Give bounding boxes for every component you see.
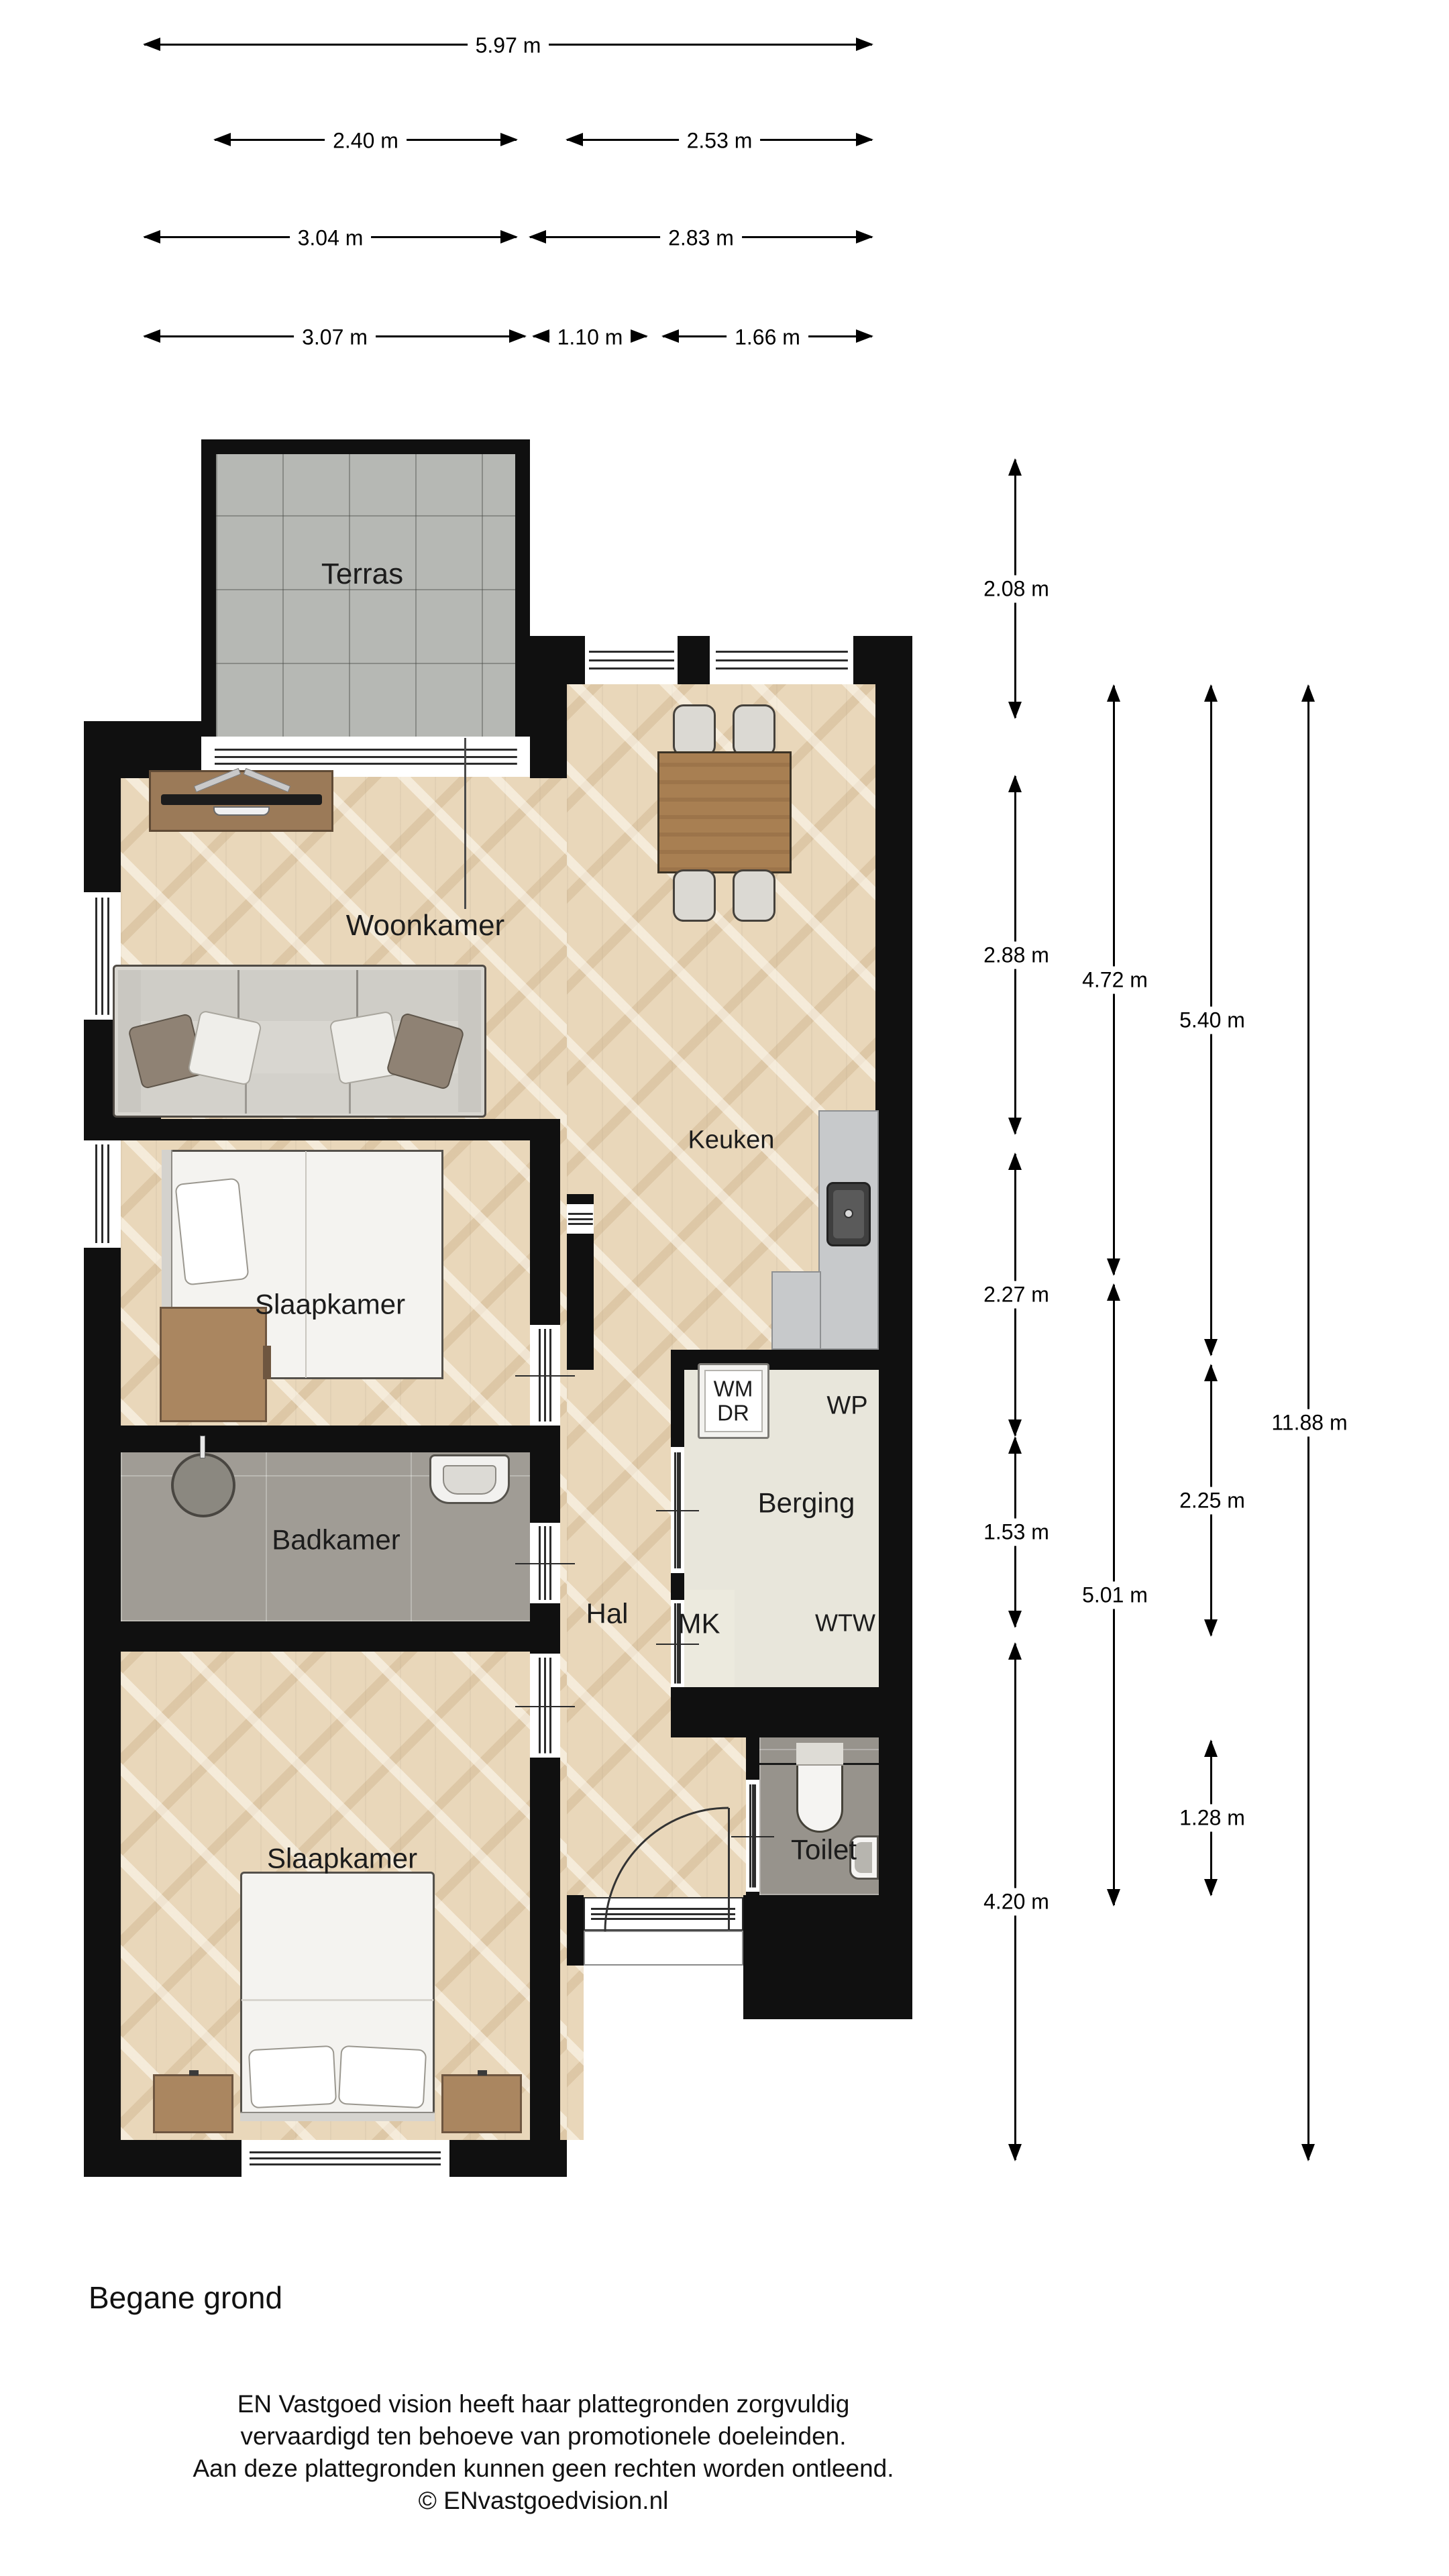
dim-living-depth-label: 4.72 m (1074, 967, 1156, 994)
dim-woonkamer-depth: 2.88 m (1014, 776, 1016, 1134)
dim-living-depth: 4.72 m (1113, 686, 1115, 1275)
dim-badkamer-depth-label: 1.53 m (975, 1519, 1057, 1546)
toilet-seat-top (796, 1743, 843, 1766)
dim-hall-depth: 5.01 m (1113, 1285, 1115, 1905)
sofa-back (118, 970, 481, 1021)
window-slaapkamer2-bottom (241, 2140, 449, 2177)
nightstand-right (441, 2074, 522, 2133)
wall-slaapkamer-badkamer (121, 1426, 530, 1452)
floor-terras (216, 454, 515, 738)
terras-wall-left (201, 439, 216, 738)
door-slaapkamer-1 (530, 1325, 560, 1426)
terras-wall-right (515, 439, 530, 738)
dim-hall-depth-label: 5.01 m (1074, 1581, 1156, 1609)
wall-right (875, 636, 912, 2019)
disclaimer-line-1: EN Vastgoed vision heeft haar plattegron… (134, 2388, 953, 2420)
exterior-below-door (584, 1966, 743, 2140)
wall-hal-vertical (530, 1119, 560, 2140)
kitchen-faucet-icon (844, 1209, 853, 1218)
dining-chair-4 (733, 869, 775, 922)
door-badkamer (530, 1523, 560, 1603)
dim-woonkamer-width-label: 3.04 m (290, 225, 372, 252)
bathroom-sink-basin (443, 1465, 496, 1495)
bed-double-pillow-right (338, 2045, 427, 2109)
label-woonkamer: Woonkamer (346, 910, 504, 942)
bedroom1-desk-notch (263, 1346, 271, 1379)
bedroom1-desk (160, 1307, 267, 1422)
dim-right-width: 2.83 m (530, 236, 872, 238)
front-door-swing-arc (605, 1808, 730, 1933)
disclaimer-line-2: vervaardigd ten behoeve van promotionele… (134, 2420, 953, 2453)
dim-keuken-width-label: 2.53 m (679, 127, 761, 155)
dim-keuken-depth-label: 5.40 m (1171, 1007, 1253, 1034)
shower-faucet (200, 1436, 205, 1458)
label-slaapkamer-2: Slaapkamer (267, 1843, 417, 1873)
exterior-bottom-right (743, 2019, 912, 2140)
dim-total-depth-label: 11.88 m (1263, 1409, 1355, 1437)
door-berging (671, 1447, 684, 1573)
label-badkamer: Badkamer (272, 1524, 400, 1554)
dim-woonkamer-depth-label: 2.88 m (975, 941, 1057, 969)
window-top-1 (585, 636, 678, 684)
door-toilet (746, 1780, 759, 1892)
dim-terras-width-label: 2.40 m (325, 127, 407, 155)
label-mk: MK (678, 1608, 720, 1638)
nightstand-right-knob (478, 2070, 487, 2076)
opening-keuken-hal (567, 1204, 594, 1234)
dining-chair-3 (673, 869, 716, 922)
dining-chair-1 (673, 704, 716, 757)
front-door-step (584, 1931, 743, 1966)
dim-width-total: 5.97 m (144, 44, 872, 46)
wall-woonkamer-slaapkamer (121, 1119, 530, 1140)
wall-frontdoor-left (567, 1895, 584, 1966)
terras-door-leaf-line (464, 738, 466, 909)
dim-width-total-label: 5.97 m (468, 32, 549, 60)
disclaimer-copyright: © ENvastgoedvision.nl (134, 2485, 953, 2517)
window-slaapkamer-left (84, 1140, 121, 1248)
dining-chair-2 (733, 704, 775, 757)
dim-slaapkamer-width-label: 3.07 m (294, 324, 376, 352)
label-keuken: Keuken (688, 1126, 775, 1154)
label-slaapkamer-1: Slaapkamer (255, 1289, 405, 1319)
dim-hal-width-label: 1.10 m (549, 324, 631, 352)
dim-total-depth: 11.88 m (1307, 686, 1309, 2160)
label-toilet: Toilet (791, 1834, 857, 1864)
dim-berging-width: 1.66 m (663, 335, 872, 337)
terras-wall-top (201, 439, 530, 454)
dim-berging-depth-label: 2.25 m (1171, 1487, 1253, 1514)
dim-toilet-depth-label: 1.28 m (1171, 1805, 1253, 1832)
label-hal: Hal (586, 1598, 628, 1628)
wall-bottom-right-chunk (743, 1895, 912, 2019)
label-wm-dr: WM DR (714, 1377, 753, 1424)
dining-table (657, 751, 792, 873)
dim-slaapkamer1-depth: 2.27 m (1014, 1154, 1016, 1436)
label-terras: Terras (321, 558, 403, 590)
bed-single-pillow (174, 1177, 249, 1285)
floor-title: Begane grond (89, 2279, 282, 2316)
dim-woonkamer-width: 3.04 m (144, 236, 517, 238)
shower-drain (171, 1453, 235, 1517)
label-wp: WP (826, 1392, 867, 1419)
dim-terras-depth: 2.08 m (1014, 460, 1016, 718)
dim-berging-depth: 2.25 m (1210, 1365, 1212, 1635)
dim-berging-width-label: 1.66 m (727, 324, 808, 352)
bed-double-pillow-left (248, 2045, 337, 2109)
dim-keuken-depth: 5.40 m (1210, 686, 1212, 1355)
nightstand-left (153, 2074, 233, 2133)
dim-keuken-width: 2.53 m (567, 139, 872, 141)
tv-stand (213, 806, 270, 816)
dim-toilet-depth: 1.28 m (1210, 1741, 1212, 1895)
dim-slaapkamer2-depth: 4.20 m (1014, 1644, 1016, 2160)
dim-right-width-label: 2.83 m (660, 225, 742, 252)
sofa-pillow-2 (187, 1010, 262, 1085)
bed-double-fold-line (241, 1999, 433, 2001)
wall-berging-toilet (746, 1687, 879, 1737)
tv-screen (161, 794, 322, 805)
wall-badkamer-slaapkamer2 (121, 1621, 530, 1652)
label-wtw: WTW (815, 1611, 875, 1637)
label-berging: Berging (758, 1487, 855, 1517)
toilet-sink-basin (855, 1842, 872, 1873)
nightstand-left-knob (189, 2070, 199, 2076)
door-slaapkamer-2 (530, 1654, 560, 1758)
floorplan-canvas: 5.97 m2.40 m2.53 m3.04 m2.83 m3.07 m1.10… (0, 0, 1449, 2576)
bed-single-duvet-line (305, 1151, 307, 1378)
disclaimer-line-3: Aan deze plattegronden kunnen geen recht… (134, 2453, 953, 2485)
disclaimer: EN Vastgoed vision heeft haar plattegron… (134, 2388, 953, 2517)
window-top-2 (710, 636, 853, 684)
dim-slaapkamer-width: 3.07 m (144, 335, 525, 337)
bed-double-headboard (240, 2112, 435, 2121)
dim-slaapkamer2-depth-label: 4.20 m (975, 1888, 1057, 1916)
dim-terras-width: 2.40 m (215, 139, 517, 141)
wall-top-connector (530, 636, 567, 778)
dim-hal-width: 1.10 m (533, 335, 647, 337)
kitchen-counter-ext (771, 1271, 821, 1350)
dim-badkamer-depth: 1.53 m (1014, 1438, 1016, 1627)
dim-terras-depth-label: 2.08 m (975, 575, 1057, 602)
dim-slaapkamer1-depth-label: 2.27 m (975, 1281, 1057, 1309)
